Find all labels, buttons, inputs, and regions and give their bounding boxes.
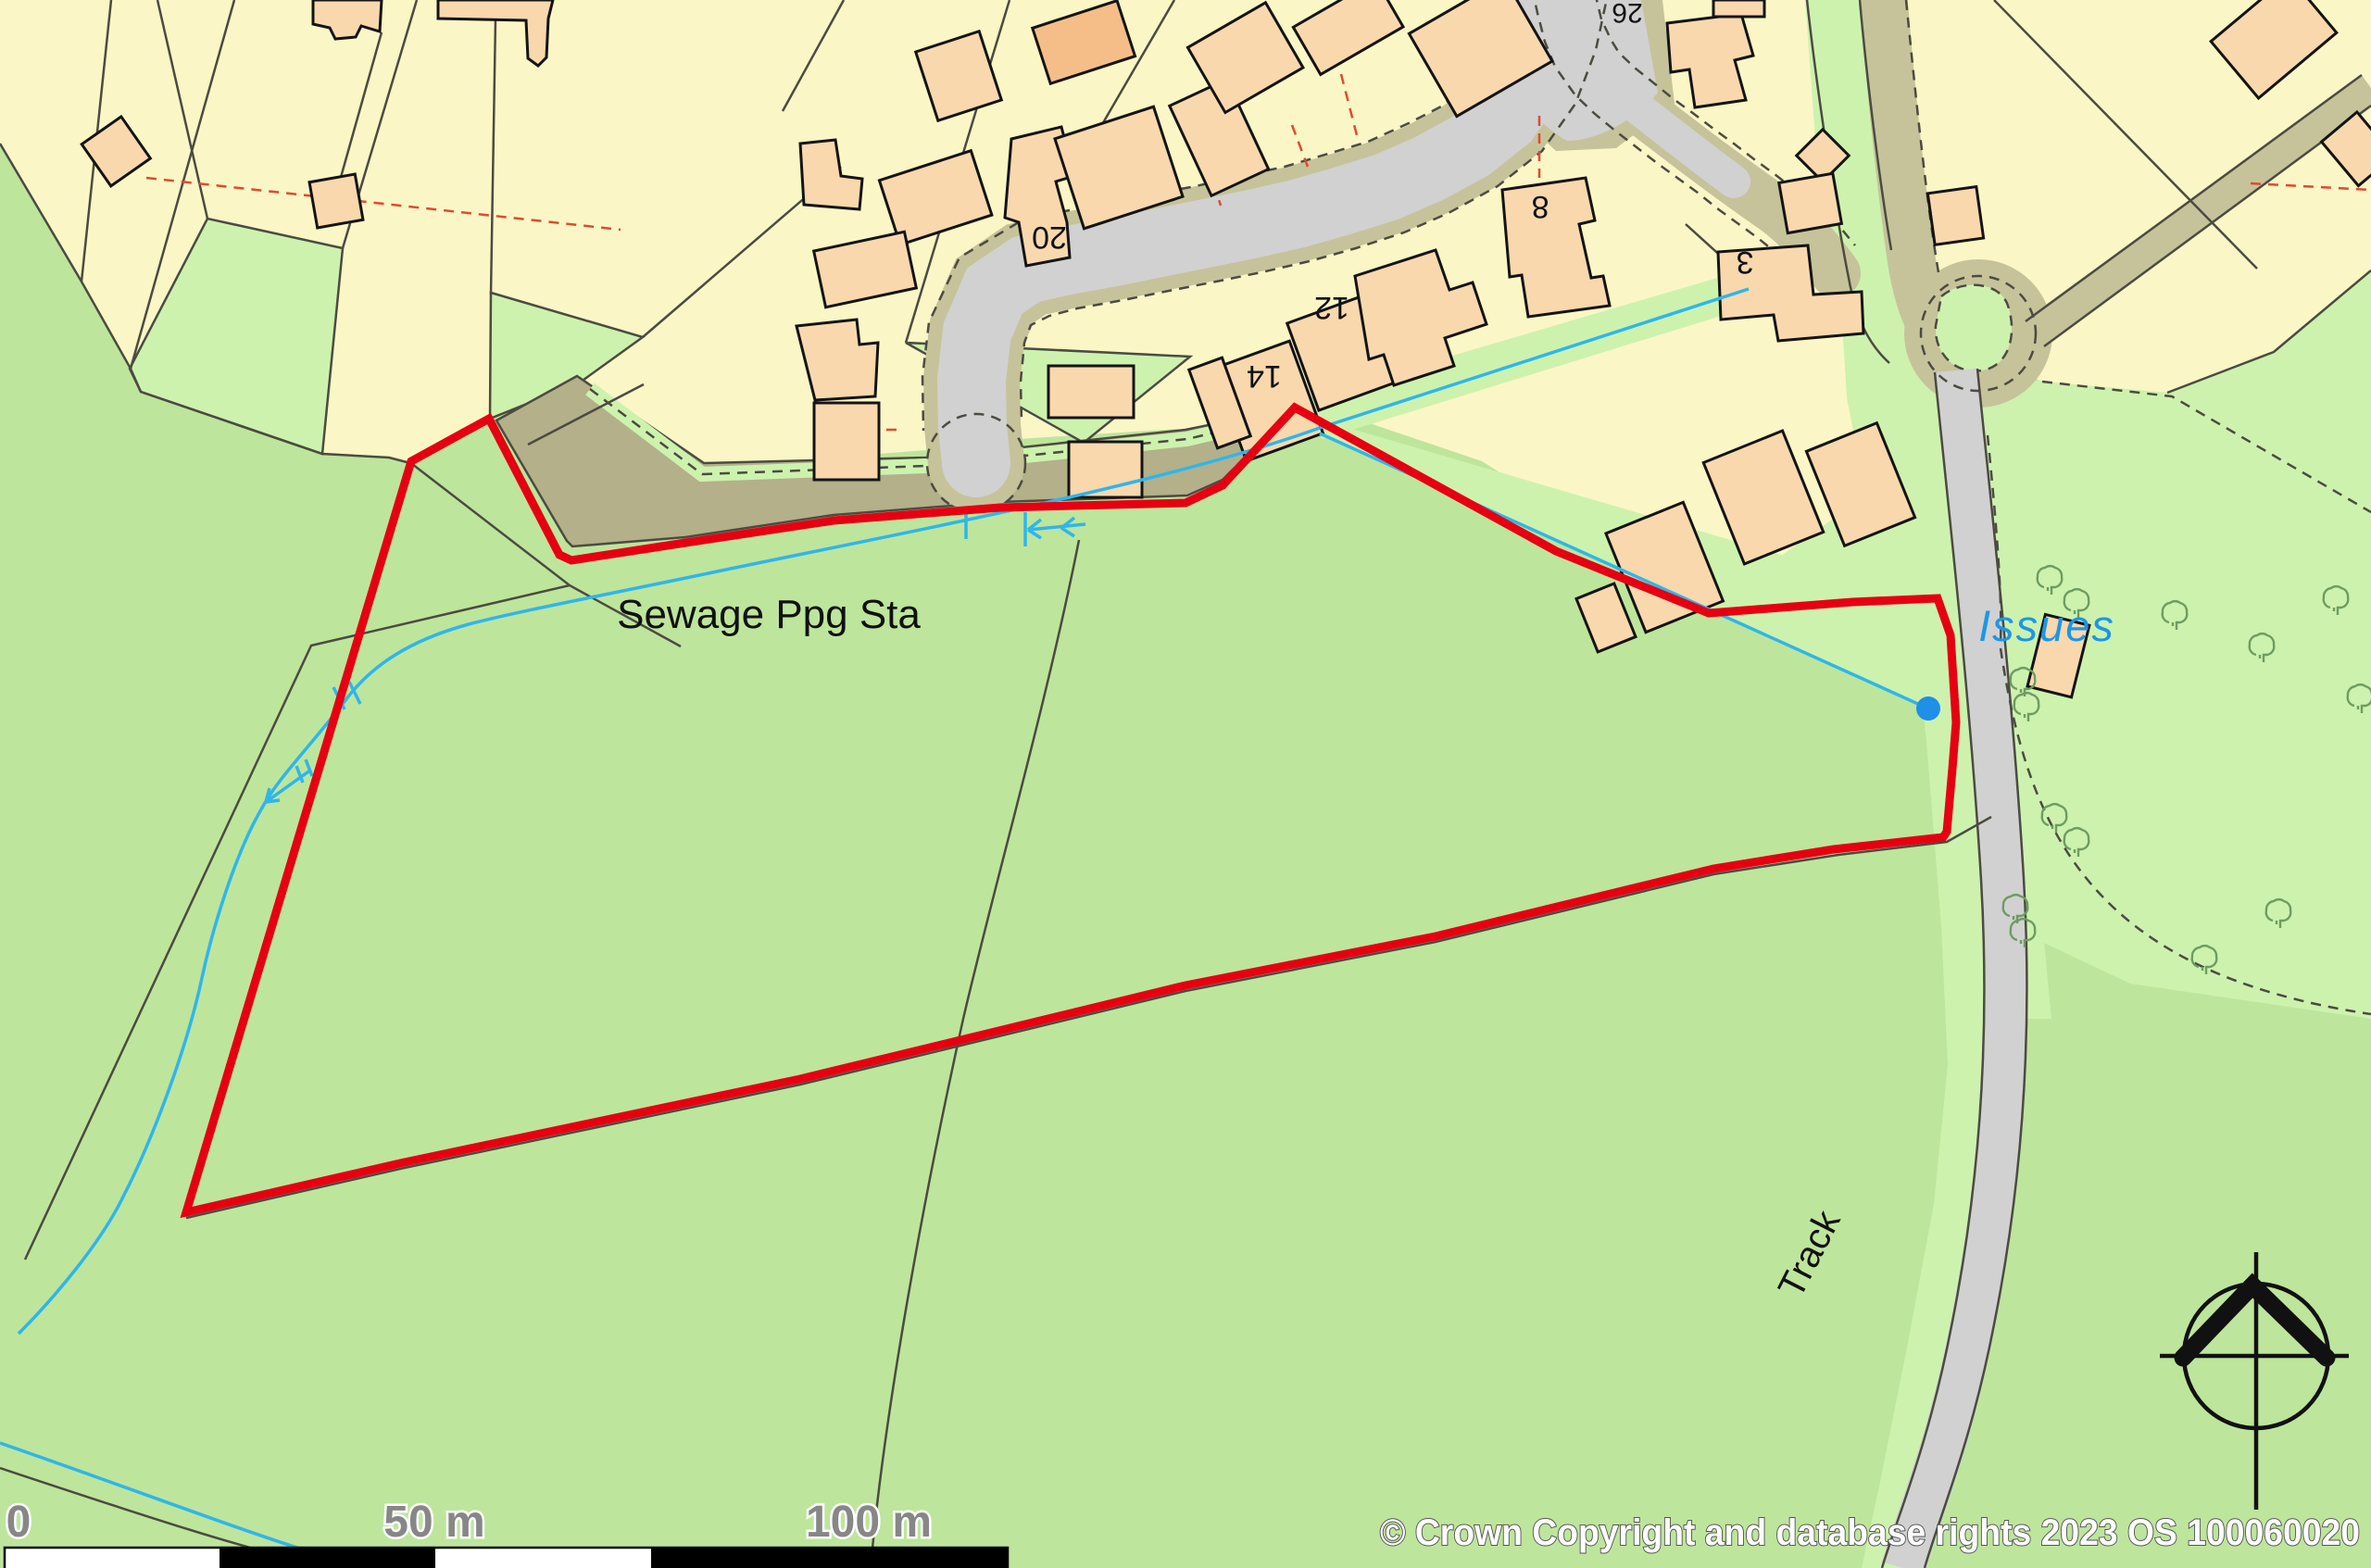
svg-text:0: 0 [6, 1498, 31, 1547]
svg-text:26: 26 [1612, 0, 1642, 28]
svg-text:14: 14 [1247, 358, 1282, 394]
svg-text:12: 12 [1314, 290, 1349, 325]
svg-text:8: 8 [1532, 189, 1549, 224]
svg-text:50 m: 50 m [383, 1498, 484, 1547]
svg-text:100 m: 100 m [806, 1498, 932, 1547]
svg-text:Sewage Ppg Sta: Sewage Ppg Sta [617, 592, 921, 637]
svg-text:3: 3 [1737, 245, 1754, 280]
svg-text:20: 20 [1032, 220, 1067, 255]
svg-text:© Crown Copyright and database: © Crown Copyright and database rights 20… [1380, 1512, 2360, 1553]
svg-text:Issues: Issues [1978, 601, 2115, 650]
